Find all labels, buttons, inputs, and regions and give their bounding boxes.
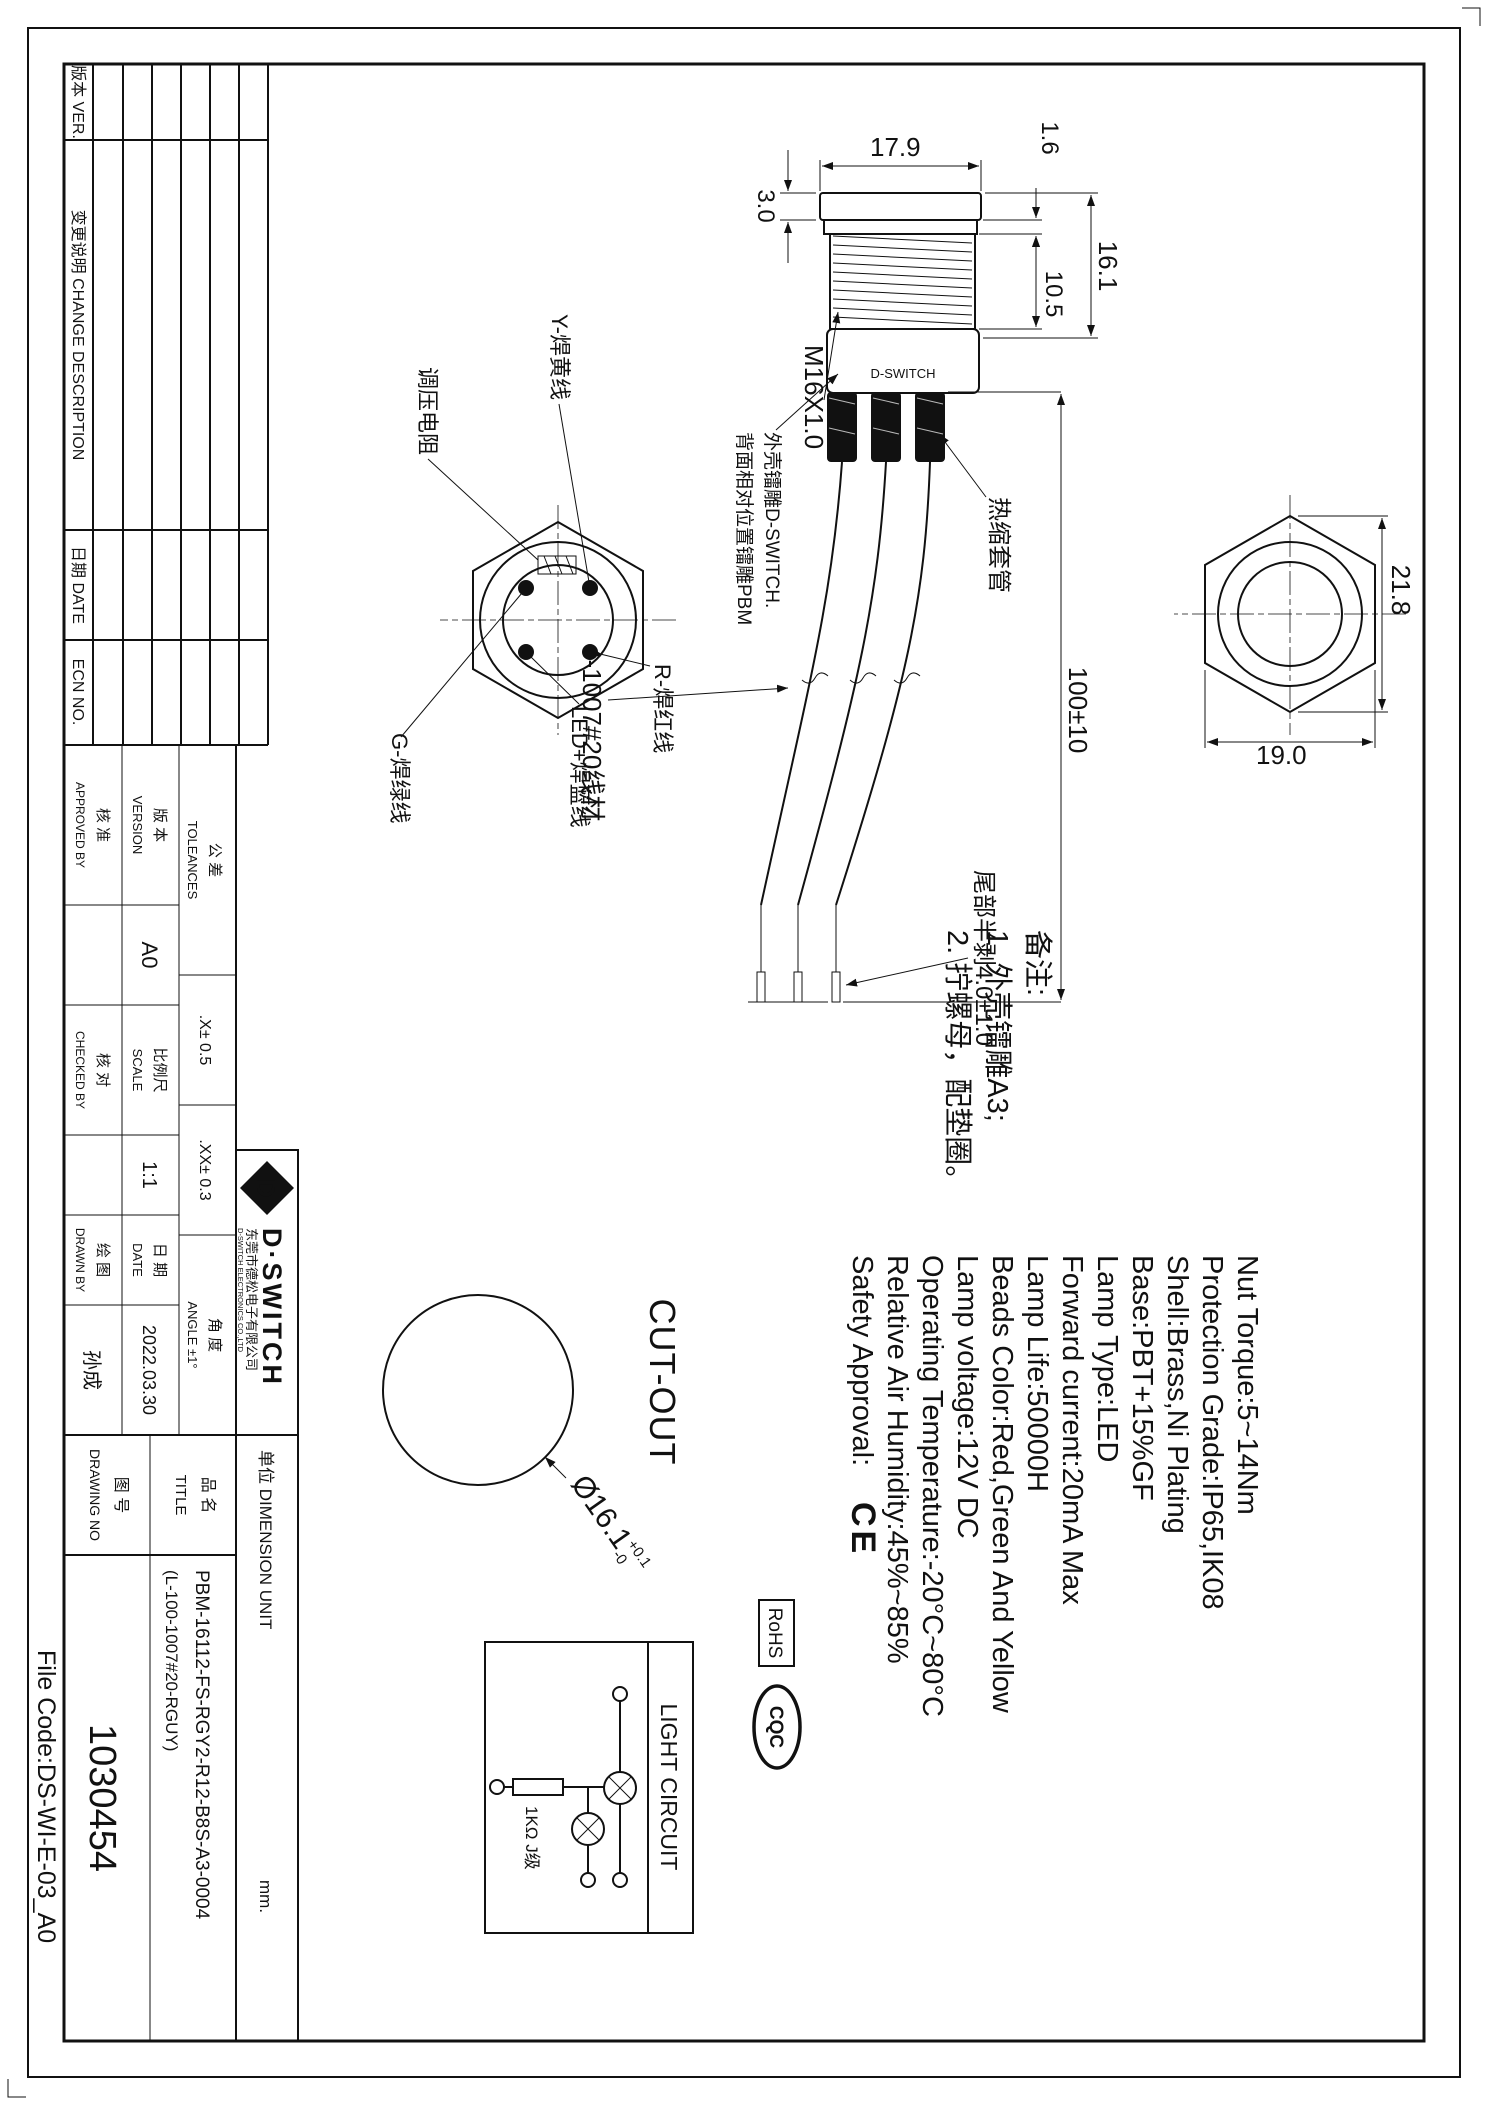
solder-lug-green [518, 580, 534, 596]
laser-note-line1: 外壳镭雕D-SWITCH. [761, 432, 783, 608]
spec-protection: Protection Grade:IP65,IK08 [1196, 1255, 1228, 1610]
solder-lug-yellow [582, 580, 598, 596]
dim-19-0-text: 19.0 [1256, 740, 1307, 770]
brand-name: D·SWITCH [257, 1228, 287, 1387]
notes-block: 备注: 1. 外壳镭雕A3; 2. 拧螺母，配垫圈。 [941, 930, 1054, 1194]
spec-beads-color: Beads Color:Red,Green And Yellow [986, 1255, 1018, 1714]
landscape-drawing: 版本 VER. 变更说明 CHANGE DESCRIPTION 日期 DATE … [0, 0, 1488, 2105]
tolerance-label-en: TOLEANCES [185, 821, 200, 900]
title-block: 公 差 TOLEANCES .X± 0.5 .XX± 0.3 角 度 ANGLE… [64, 745, 298, 2041]
thread-section [830, 234, 975, 329]
spec-base: Base:PBT+15%GF [1126, 1255, 1158, 1501]
dim-3-0: 3.0 [752, 150, 816, 263]
version-value: A0 [137, 942, 162, 969]
corner-mark-top-left [1462, 8, 1480, 26]
part-number-line2: (L-100-1007#20-RGUY) [162, 1570, 181, 1751]
terminal-bottom [490, 1780, 504, 1794]
drawn-by-value: 孙成 [80, 1350, 103, 1390]
cutout-dia-text: Ø16.1 [564, 1469, 638, 1555]
part-name-label-zh: 品 名 [199, 1477, 217, 1513]
bezel-flange [824, 220, 977, 234]
wire-label-green-text: G-焊绿线 [387, 733, 412, 823]
scale-value: 1:1 [138, 1161, 160, 1189]
logo-letter: D [251, 1179, 281, 1198]
terminal-right-1 [613, 1873, 627, 1887]
cutout-title: CUT-OUT [642, 1299, 683, 1466]
dim-16-1-text: 16.1 [1093, 241, 1123, 292]
button-cap [820, 193, 981, 220]
scale-label-en: SCALE [130, 1049, 145, 1092]
tolerance-xx: .XX± 0.3 [196, 1139, 213, 1200]
angle-label-en: ANGLE ±1° [185, 1301, 200, 1368]
engineering-drawing-canvas: 版本 VER. 变更说明 CHANGE DESCRIPTION 日期 DATE … [0, 0, 1488, 2105]
solder-side-view: Y-焊黄线 调压电阻 R-焊红线 LED+焊蓝线 G-焊绿线 [387, 314, 676, 828]
wire-label-resistor: 调压电阻 [415, 367, 538, 560]
file-code: File Code:DS-WI-E-03_A0 [32, 1650, 60, 1943]
resistor-symbol [513, 1779, 563, 1795]
svg-text:CQC: CQC [765, 1706, 786, 1749]
date-value: 2022.03.30 [139, 1325, 159, 1415]
dim-21-8-text: 21.8 [1386, 565, 1416, 616]
version-label-zh: 版 本 [151, 808, 168, 842]
sheet-frame [8, 8, 1480, 2097]
terminal-right-2 [581, 1873, 595, 1887]
wire-tips [757, 905, 840, 1002]
unit-label: 单位 DIMENSION UNIT [256, 1450, 275, 1629]
wire-label-green: G-焊绿线 [387, 593, 522, 823]
spec-list: Nut Torque:5~14Nm Protection Grade:IP65,… [754, 1255, 1263, 1768]
version-label-en: VERSION [130, 796, 145, 855]
light-circuit-title: LIGHT CIRCUIT [656, 1704, 682, 1871]
label-heat-shrink: 热缩套管 [939, 434, 1012, 593]
heat-shrink-text: 热缩套管 [985, 497, 1012, 593]
company-logo: D D·SWITCH 东莞市德松电子有限公司 D-SWITCH ELECTRON… [236, 1161, 294, 1387]
dim-17-9-text: 17.9 [870, 132, 921, 162]
dim-17-9: 17.9 [820, 132, 981, 191]
dim-1-6-and-10-5: 1.6 10.5 [979, 121, 1067, 329]
cqc-mark-icon: CQC [754, 1686, 800, 1768]
part-name-label-en: TITLE [172, 1475, 189, 1516]
company-name-en: D-SWITCH ELECTRONICS CO.,LTD [236, 1228, 245, 1353]
cutout-circle [383, 1295, 573, 1485]
dim-100: 100±10 [748, 392, 1093, 1002]
spec-lamp-life: Lamp Life:50000H [1021, 1255, 1053, 1492]
corner-mark-bottom-right [8, 2079, 26, 2097]
dim-10-5-text: 10.5 [1040, 271, 1067, 318]
light-circuit: LIGHT CIRCUIT 1KΩ J级 [485, 1642, 693, 1933]
cutout-dim: Ø16.1 +0.1 -0 [562, 1469, 656, 1581]
wire-label-blue-text: LED+焊蓝线 [567, 706, 592, 828]
drawing-no-label-zh: 图 号 [112, 1477, 130, 1513]
svg-text:RoHS: RoHS [764, 1608, 785, 1659]
cutout-detail: CUT-OUT Ø16.1 +0.1 -0 [383, 1295, 683, 1581]
notes-line1: 1. 外壳镭雕A3; [981, 930, 1014, 1122]
drawing-no-label-en: DRAWING NO [87, 1449, 103, 1541]
wire-label-red-text: R-焊红线 [650, 664, 675, 753]
rev-header-ecn: ECN NO. [69, 659, 86, 726]
dim-1-6-text: 1.6 [1036, 121, 1063, 154]
wire-label-yellow-text: Y-焊黄线 [547, 314, 572, 400]
company-name-zh: 东莞市德松电子有限公司 [244, 1228, 259, 1371]
spec-nut-torque: Nut Torque:5~14Nm [1231, 1255, 1263, 1515]
circuit-diagram: 1KΩ J级 [490, 1687, 636, 1887]
unit-value: mm. [256, 1880, 275, 1913]
heat-shrink-sleeves [827, 392, 945, 462]
wire-label-resistor-text: 调压电阻 [415, 367, 440, 455]
wires [761, 462, 930, 905]
spec-lamp-type: Lamp Type:LED [1091, 1255, 1123, 1462]
scale-label-zh: 比例尺 [151, 1047, 168, 1092]
approved-label-zh: 核 准 [94, 808, 111, 842]
date-label-zh: 日 期 [151, 1243, 168, 1277]
angle-label-zh: 角 度 [206, 1318, 223, 1352]
spec-shell: Shell:Brass,Ni Plating [1161, 1255, 1193, 1534]
drawn-label-zh: 绘 图 [94, 1243, 111, 1277]
side-view: D-SWITCH 17.9 [577, 121, 1123, 1046]
spec-forward-current: Forward current:20mA Max [1056, 1255, 1088, 1605]
solder-lug-red [582, 644, 598, 660]
tolerance-label-zh: 公 差 [206, 843, 223, 877]
laser-note-line2: 背面相对位置镭雕PBM [733, 432, 755, 625]
rev-header-date: 日期 DATE [69, 546, 87, 624]
tolerance-x: .X± 0.5 [196, 1015, 213, 1066]
dim-3-0-text: 3.0 [752, 189, 779, 222]
nut-face-view: 21.8 19.0 [1174, 495, 1416, 770]
wire-label-red: R-焊红线 [596, 653, 675, 753]
label-wire-type: 4-1007#20线材 [577, 645, 788, 821]
notes-line2: 2. 拧螺母，配垫圈。 [941, 930, 974, 1194]
rohs-mark-icon: RoHS [759, 1600, 794, 1666]
drawing-sheet-page: 版本 VER. 变更说明 CHANGE DESCRIPTION 日期 DATE … [0, 0, 1488, 2105]
terminal-left [613, 1687, 627, 1701]
label-tail-strip: 尾部半剥4.0±1.0 [846, 870, 997, 1046]
ce-mark-icon: CE [844, 1502, 882, 1557]
shell-engraving: D-SWITCH [871, 366, 936, 381]
dim-100-text: 100±10 [1063, 667, 1093, 754]
checked-label-zh: 核 对 [94, 1053, 111, 1087]
approved-label-en: APPROVED BY [73, 782, 87, 868]
checked-label-en: CHECKED BY [73, 1031, 87, 1109]
rev-header-description: 变更说明 CHANGE DESCRIPTION [69, 210, 87, 461]
drawing-no-value: 1030454 [81, 1724, 123, 1872]
spec-lamp-voltage: Lamp voltage:12V DC [951, 1255, 983, 1539]
spec-humidity: Relative Air Humidity:45%~85% [881, 1255, 913, 1664]
revision-table: 版本 VER. 变更说明 CHANGE DESCRIPTION 日期 DATE … [64, 64, 268, 745]
spec-operating-temp: Operating Temperature:-20°C~80°C [916, 1255, 948, 1717]
drawn-label-en: DRAWN BY [73, 1228, 87, 1292]
switch-shell [827, 329, 979, 393]
spec-safety-approval: Safety Approval: [846, 1255, 878, 1466]
part-number-line1: PBM-16112-FS-RGY2-R12-B8S-A3-0004 [191, 1570, 212, 1920]
notes-title: 备注: [1021, 930, 1054, 996]
date-label-en: DATE [130, 1243, 145, 1277]
rev-header-version: 版本 VER. [69, 65, 87, 139]
resistor-value: 1KΩ J级 [522, 1806, 541, 1870]
